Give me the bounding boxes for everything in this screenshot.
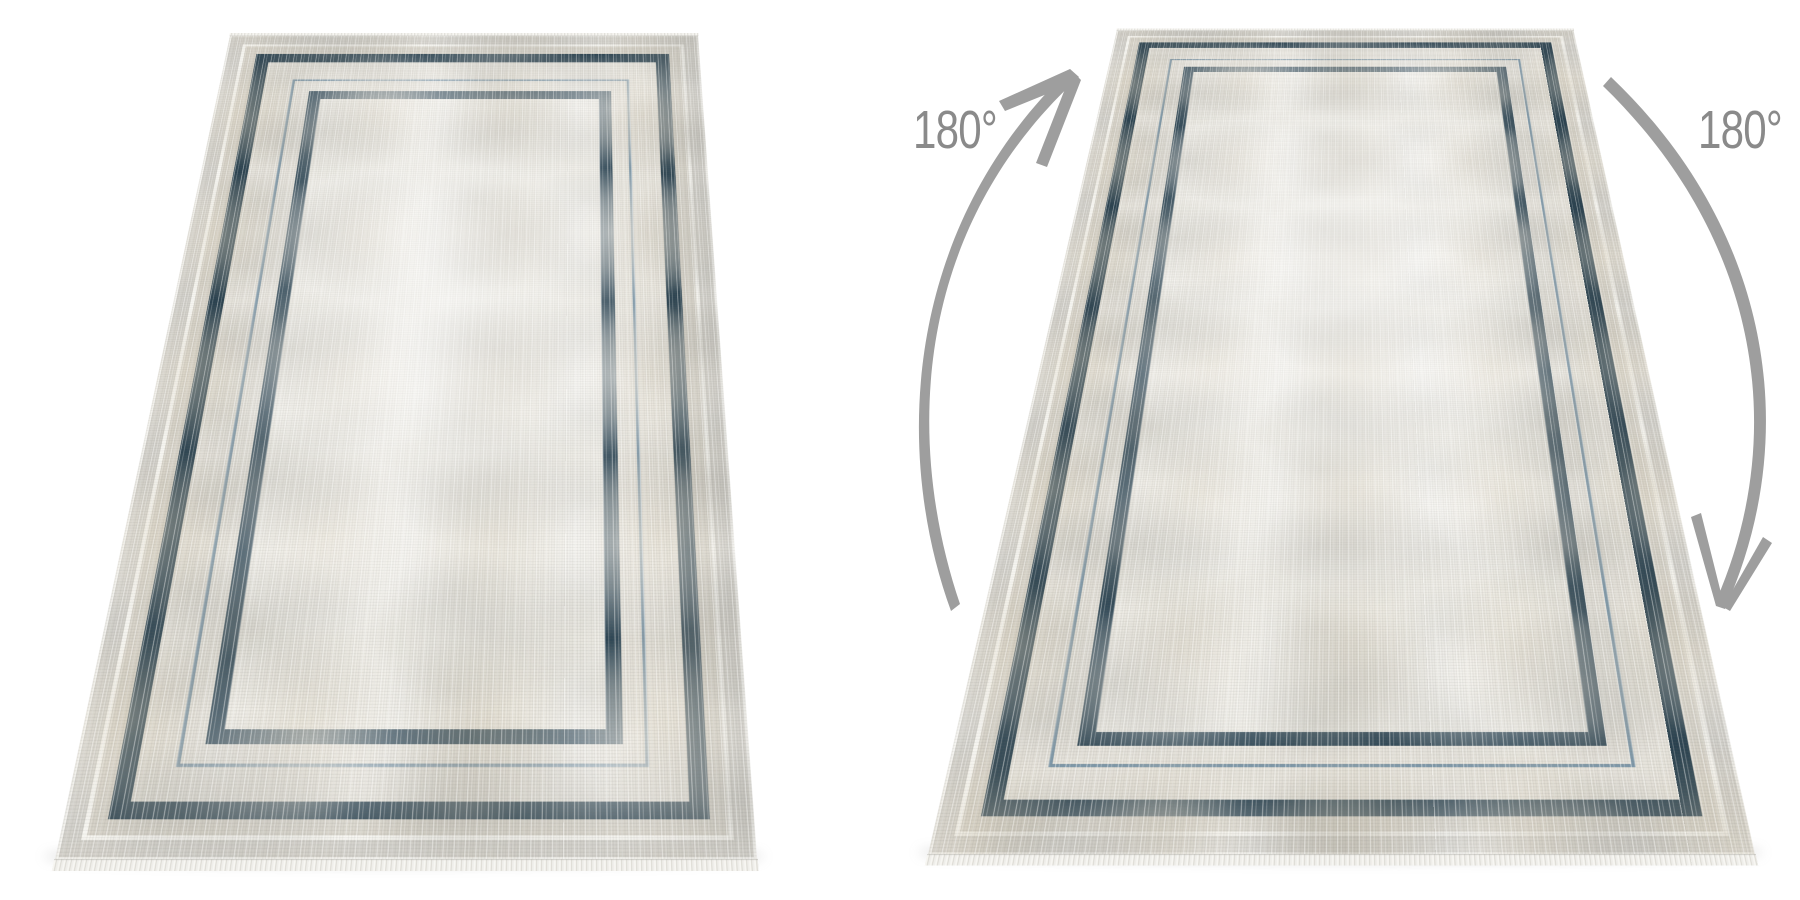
right-rug-image: [928, 30, 1755, 855]
rug-texture: [928, 30, 1755, 855]
rug-texture: [928, 30, 1755, 855]
rug-texture: [928, 30, 1755, 855]
right-rug-scene: [928, 0, 1755, 855]
rotation-label-right: 180°: [1698, 103, 1782, 157]
rug-fringe: [52, 859, 759, 871]
rug-texture: [928, 30, 1755, 855]
rug-fringe: [229, 33, 698, 36]
left-rug-image: [55, 35, 757, 860]
rug-texture: [55, 35, 757, 860]
rug-texture: [55, 35, 757, 860]
rug-texture: [55, 35, 757, 860]
rug-texture: [55, 35, 757, 860]
product-photo-stage: 180° 180°: [0, 0, 1800, 900]
rug-fringe: [925, 854, 1759, 865]
rug-fringe: [1116, 29, 1574, 31]
left-rug-scene: [55, 0, 757, 860]
rotation-label-left: 180°: [913, 103, 997, 157]
